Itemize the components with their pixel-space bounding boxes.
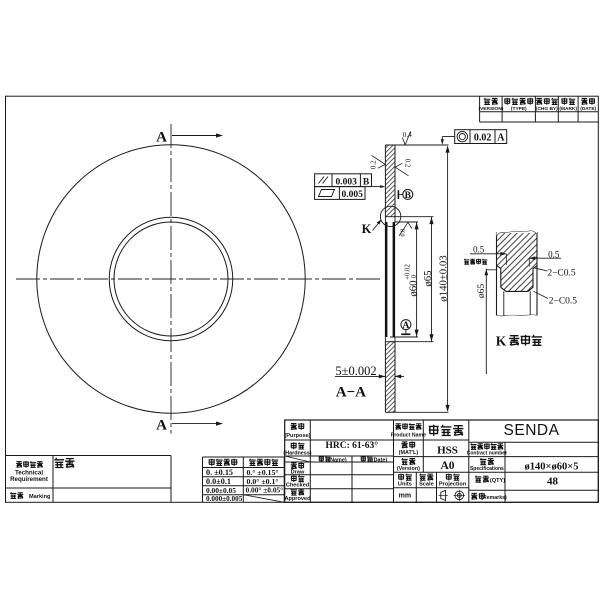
svg-text:0.02: 0.02 — [474, 133, 492, 144]
svg-text:Requirement: Requirement — [10, 476, 48, 483]
svg-text:0.° ±0.15°: 0.° ±0.15° — [247, 468, 279, 477]
svg-text:ø140±0.03: ø140±0.03 — [437, 255, 449, 301]
svg-text:Scale: Scale — [419, 482, 434, 488]
svg-text:Approved: Approved — [284, 496, 311, 502]
svg-text:A: A — [497, 133, 505, 144]
svg-text:ø60: ø60 — [407, 280, 419, 296]
svg-text:K: K — [362, 222, 372, 236]
svg-text:(Date): (Date) — [372, 457, 387, 463]
svg-text:0.003: 0.003 — [336, 177, 358, 187]
svg-text:mm: mm — [399, 493, 411, 500]
svg-text:Draw: Draw — [291, 469, 305, 475]
svg-text:Checked: Checked — [286, 483, 310, 489]
svg-text:A0: A0 — [440, 460, 454, 472]
svg-text:2−C0.5: 2−C0.5 — [549, 296, 578, 306]
svg-text:SENDA: SENDA — [504, 422, 560, 439]
svg-text:(Remarks): (Remarks) — [481, 495, 507, 501]
svg-text:(CHG BY): (CHG BY) — [536, 106, 558, 112]
svg-text:ø65: ø65 — [422, 270, 434, 286]
svg-text:0.8: 0.8 — [400, 229, 407, 237]
svg-text:ø140×ø60×5: ø140×ø60×5 — [525, 461, 579, 472]
svg-text:B: B — [405, 191, 412, 201]
svg-text:Contract number: Contract number — [467, 451, 507, 457]
svg-text:A: A — [156, 418, 167, 434]
svg-text:0.2: 0.2 — [370, 160, 378, 169]
svg-text:A−A: A−A — [336, 384, 366, 400]
svg-text:HRC: 61-63°: HRC: 61-63° — [325, 440, 378, 451]
svg-text:0.4: 0.4 — [403, 131, 412, 139]
svg-text:0: 0 — [411, 274, 418, 278]
svg-text:0.00±0.05: 0.00±0.05 — [206, 486, 236, 495]
svg-text:(VERSION): (VERSION) — [479, 106, 504, 112]
svg-text:5±0.002: 5±0.002 — [335, 364, 376, 378]
svg-text:(Version): (Version) — [397, 466, 420, 472]
svg-text:0. ±0.15: 0. ±0.15 — [206, 468, 233, 477]
svg-text:(MAT'L): (MAT'L) — [399, 450, 419, 456]
svg-text:Units: Units — [398, 482, 412, 488]
svg-text:0.000±0.005: 0.000±0.005 — [206, 495, 243, 503]
svg-text:2−C0.5: 2−C0.5 — [547, 268, 576, 278]
svg-text:0.5: 0.5 — [473, 244, 485, 254]
svg-text:HSS: HSS — [437, 444, 458, 456]
svg-text:B: B — [363, 177, 370, 187]
svg-text:Projection: Projection — [439, 482, 467, 488]
svg-text:0.005: 0.005 — [342, 190, 364, 200]
svg-text:0.2: 0.2 — [403, 159, 411, 168]
svg-text:(DATE): (DATE) — [580, 106, 596, 112]
svg-text:K: K — [496, 333, 507, 348]
svg-text:(Hardness): (Hardness) — [283, 450, 311, 456]
svg-text:ø65: ø65 — [477, 284, 487, 299]
svg-text:48: 48 — [547, 476, 559, 488]
svg-text:Marking: Marking — [29, 494, 51, 500]
svg-text:A: A — [156, 130, 167, 146]
svg-text:(Name): (Name) — [328, 457, 346, 463]
svg-text:0.0±0.1: 0.0±0.1 — [206, 477, 231, 486]
svg-text:0.00° ±0.05°: 0.00° ±0.05° — [246, 486, 284, 495]
svg-text:Specifications: Specifications — [470, 466, 504, 472]
svg-text:(QTY): (QTY) — [490, 478, 505, 484]
svg-text:(MARK): (MARK) — [559, 106, 577, 112]
svg-text:Product Name: Product Name — [391, 433, 426, 439]
svg-text:(Purpose): (Purpose) — [284, 433, 310, 439]
svg-text:(TYPE): (TYPE) — [511, 106, 527, 112]
